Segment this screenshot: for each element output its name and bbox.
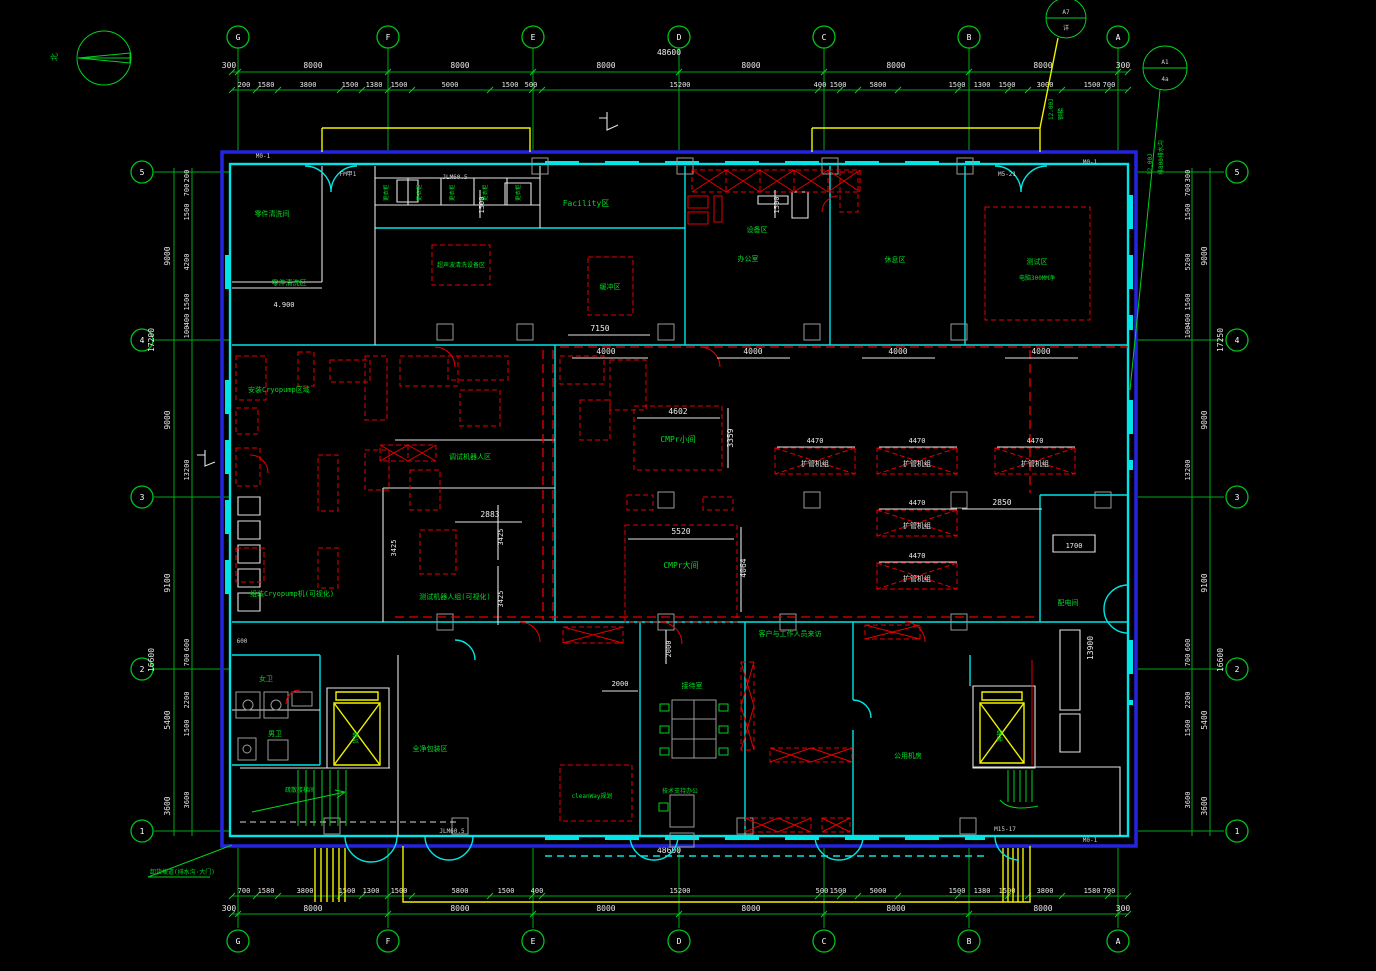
dim-text: 700 bbox=[238, 887, 251, 895]
dim-7150: 7150 bbox=[590, 324, 609, 333]
stairs-right bbox=[1000, 770, 1038, 808]
grid-bubble-col: G bbox=[236, 33, 241, 42]
dim-text: 8000 bbox=[450, 61, 469, 70]
dims-top-sub: 2001580380015001380150050001500500152004… bbox=[238, 81, 1116, 89]
grid-bubble-col: E bbox=[531, 33, 536, 42]
dim-4000: 4000 bbox=[596, 347, 615, 356]
dim-text: 1500 bbox=[339, 887, 356, 895]
dim-4470: 4470 bbox=[909, 499, 926, 507]
room-label-cmpr-large: CMPr大间 bbox=[663, 560, 698, 570]
dim-text: 300 bbox=[222, 904, 237, 913]
floorplan-drawing: 北 GFEDCBA GFEDCBA 54321 54321 48600 4860… bbox=[0, 0, 1376, 971]
dims-right-main: 90009000910054003600 bbox=[1200, 246, 1209, 815]
dim-text: 1500 bbox=[949, 81, 966, 89]
dim-4000: 4000 bbox=[743, 347, 762, 356]
locker-label: 更衣柜 bbox=[448, 184, 456, 201]
grid-bubbles-right: 54321 bbox=[1226, 161, 1248, 842]
grid-bubble-col: F bbox=[386, 33, 391, 42]
dim-1500: 1500 bbox=[478, 197, 486, 214]
room-label-freight-lift: 货梯 bbox=[352, 732, 360, 744]
dim-text: 15200 bbox=[669, 887, 690, 895]
grid-bubble-row: 3 bbox=[140, 493, 145, 502]
dim-text: 1500 bbox=[391, 81, 408, 89]
room-label-cleanway: cleanWay规划 bbox=[572, 792, 613, 800]
dim-1500: 1500 bbox=[773, 197, 781, 214]
room-label-test-room: 测试区 bbox=[1027, 257, 1048, 266]
dim-text: 5400 bbox=[1200, 710, 1209, 729]
dim-text: 9000 bbox=[1200, 410, 1209, 429]
dim-text: 1500 bbox=[183, 204, 191, 221]
dims-right-sub: 3007001500520015004001001320060070022001… bbox=[1184, 170, 1192, 809]
dim-text: 400 bbox=[814, 81, 827, 89]
callout-note: 12.00J bbox=[1048, 98, 1055, 120]
dim-text: 8000 bbox=[741, 61, 760, 70]
grid-bubble-col: D bbox=[677, 33, 682, 42]
grid-bubble-col: G bbox=[236, 937, 241, 946]
room-label-facility: Facility区 bbox=[563, 199, 610, 208]
dim-text: 400 bbox=[1184, 314, 1192, 327]
cad-floorplan-screenshot: 北 GFEDCBA GFEDCBA 54321 54321 48600 4860… bbox=[0, 0, 1376, 971]
grid-bubble-row: 4 bbox=[1235, 336, 1240, 345]
door-tag: M5-21 bbox=[998, 171, 1016, 178]
pipe-unit-label: 扩管机组 bbox=[903, 459, 931, 468]
dim-text: 1500 bbox=[1184, 294, 1192, 311]
grid-bubble-col: F bbox=[386, 937, 391, 946]
grid-bubble-col: A bbox=[1116, 937, 1121, 946]
door-tag: M0-1 bbox=[1083, 159, 1098, 166]
corridor-label-visitor: 客户与工作人员来访 bbox=[759, 629, 822, 638]
pipe-unit-label: 扩管机组 bbox=[903, 574, 931, 583]
dim-text: 8000 bbox=[450, 904, 469, 913]
room-label-cmpr-small: CMPr小间 bbox=[660, 435, 695, 444]
dim-text: 3000 bbox=[1037, 81, 1054, 89]
dim-text: 300 bbox=[222, 61, 237, 70]
dim-text: 17250 bbox=[1216, 328, 1225, 352]
dim-2000: 2000 bbox=[612, 680, 629, 688]
dim-text: 3600 bbox=[183, 792, 191, 809]
dim-text: 9000 bbox=[1200, 246, 1209, 265]
dim-4602: 4602 bbox=[668, 407, 687, 416]
dim-2883: 2883 bbox=[480, 510, 499, 519]
north-label: 北 bbox=[50, 53, 59, 61]
callout-sheet: 4a bbox=[1161, 76, 1169, 83]
door-tag: M0-1 bbox=[1083, 837, 1098, 844]
dims-left-main: 90009000910054003600 bbox=[163, 246, 172, 815]
dim-4470: 4470 bbox=[807, 437, 824, 445]
detail-callout-1: A7 详 12.00J 钢梯 bbox=[1046, 0, 1086, 120]
north-arrow-icon: 北 bbox=[50, 31, 131, 85]
locker-label: 更衣柜 bbox=[415, 184, 423, 201]
dim-text: 17200 bbox=[147, 328, 156, 352]
dim-3359: 3359 bbox=[726, 428, 735, 447]
pipe-unit-label: 扩管机组 bbox=[903, 521, 931, 530]
callout-ref: A7 bbox=[1062, 9, 1070, 16]
dim-text: 5000 bbox=[442, 81, 459, 89]
callout-ref: A1 bbox=[1161, 59, 1169, 66]
dim-text: 8000 bbox=[1033, 904, 1052, 913]
door-tag: JLM60.5 bbox=[442, 174, 468, 181]
dim-text: 3800 bbox=[1037, 887, 1054, 895]
door-tag: FM甲1 bbox=[340, 171, 357, 178]
door-tag: M15-17 bbox=[994, 826, 1016, 833]
dim-text: 400 bbox=[183, 314, 191, 327]
grid-bubble-col: C bbox=[822, 937, 827, 946]
grid-bubble-row: 5 bbox=[140, 168, 145, 177]
room-label-power-room: 配电间 bbox=[1058, 598, 1079, 607]
locker-labels: 更衣柜更衣柜更衣柜更衣柜更衣柜 bbox=[382, 184, 522, 201]
columns bbox=[324, 158, 1111, 834]
dim-text: 3800 bbox=[300, 81, 317, 89]
meeting-table bbox=[660, 700, 728, 758]
grid-bubble-row: 1 bbox=[140, 827, 145, 836]
grid-bubble-row: 3 bbox=[1235, 493, 1240, 502]
door-tag: JLM60.5 bbox=[439, 828, 465, 835]
room-label-cryo-assemble: 组装Cryopump机(可视化) bbox=[250, 589, 334, 598]
dim-text: 9000 bbox=[163, 410, 172, 429]
room-label-equip-area: 设备区 bbox=[747, 225, 768, 234]
room-label-utility: 公用机房 bbox=[894, 751, 922, 760]
dim-text: 3600 bbox=[1200, 796, 1209, 815]
dim-text: 1300 bbox=[363, 887, 380, 895]
dims-left-sub: 2007001500420015004001001320060070022001… bbox=[183, 170, 191, 809]
dim-text: 700 bbox=[1103, 887, 1116, 895]
dim-text: 1500 bbox=[1084, 81, 1101, 89]
dim-text: 1380 bbox=[366, 81, 383, 89]
callout-note: 钢梯 bbox=[1057, 108, 1065, 120]
dims-bottom-main: 300800080008000800080008000300 bbox=[222, 904, 1131, 913]
room-label-robot-test: 测试机器人组(可视化) bbox=[419, 592, 490, 601]
room-label-parts-wash-area: 零件清洗区 bbox=[272, 278, 307, 287]
room-label-buffer: 缓冲区 bbox=[600, 282, 621, 291]
dim-text: 15200 bbox=[669, 81, 690, 89]
dim-text: 8000 bbox=[596, 904, 615, 913]
level-mark: 4.900 bbox=[273, 301, 294, 309]
interior-walls-white bbox=[232, 166, 1120, 836]
dim-3425: 3425 bbox=[390, 540, 398, 557]
dim-text: 5800 bbox=[870, 81, 887, 89]
dim-4000: 4000 bbox=[888, 347, 907, 356]
unload-note-text: 卸货坡道(排水沟·大门) bbox=[150, 868, 215, 876]
dim-text: 200 bbox=[183, 170, 191, 183]
pipe-unit-labels: 扩管机组扩管机组扩管机组扩管机组扩管机组 bbox=[801, 459, 1049, 583]
dim-text: 8000 bbox=[1033, 61, 1052, 70]
dim-text: 5400 bbox=[163, 710, 172, 729]
room-label-packing: 全净包装区 bbox=[413, 744, 448, 753]
dim-text: 600 bbox=[183, 639, 191, 652]
room-label-stairs: 疏散楼梯间 bbox=[285, 786, 315, 794]
dim-text: 9100 bbox=[163, 573, 172, 592]
grid-bubbles-top: GFEDCBA bbox=[227, 26, 1129, 48]
dim-text: 8000 bbox=[741, 904, 760, 913]
pipe-unit-label: 扩管机组 bbox=[801, 459, 829, 468]
grid-bubbles-bottom: GFEDCBA bbox=[227, 930, 1129, 952]
dim-text: 5200 bbox=[1184, 254, 1192, 271]
dim-text: 13200 bbox=[1184, 459, 1192, 480]
dim-text: 8000 bbox=[596, 61, 615, 70]
grid-bubble-row: 4 bbox=[140, 336, 145, 345]
room-label-test-room-2: 电脑300MM净 bbox=[1019, 274, 1055, 282]
dim-text: 9000 bbox=[163, 246, 172, 265]
dim-text: 1500 bbox=[183, 294, 191, 311]
room-label-tech-support: 技术支持办公 bbox=[662, 787, 698, 795]
dim-text: 5000 bbox=[870, 887, 887, 895]
dim-text: 2200 bbox=[1184, 692, 1192, 709]
dim-2850: 2850 bbox=[992, 498, 1011, 507]
dim-text: 500 bbox=[525, 81, 538, 89]
grid-bubble-row: 2 bbox=[1235, 665, 1240, 674]
dim-text: 1500 bbox=[830, 81, 847, 89]
room-label-ultrasonic: 超声波清洗设备区 bbox=[437, 261, 485, 269]
dim-text: 1500 bbox=[502, 81, 519, 89]
dim-text: 1500 bbox=[342, 81, 359, 89]
dim-4470: 4470 bbox=[909, 552, 926, 560]
dim-3425: 3425 bbox=[497, 591, 505, 608]
room-label-passenger-lift: 客梯 bbox=[996, 730, 1004, 742]
room-label-robot-debug: 调试机器人区 bbox=[449, 452, 491, 461]
overall-dim-top: 48600 bbox=[657, 48, 681, 57]
dim-text: 500 bbox=[816, 887, 829, 895]
dim-text: 700 bbox=[1184, 184, 1192, 197]
room-label-reception: 接待室 bbox=[682, 681, 703, 690]
grid-bubble-row: 2 bbox=[140, 665, 145, 674]
dim-600: 600 bbox=[237, 638, 248, 645]
dim-text: 1500 bbox=[1184, 720, 1192, 737]
dim-text: 13200 bbox=[183, 459, 191, 480]
dim-text: 2200 bbox=[183, 692, 191, 709]
dim-text: 1300 bbox=[974, 81, 991, 89]
dim-text: 4200 bbox=[183, 254, 191, 271]
dims-bottom-sub: 7001580380015001300150058001500400152005… bbox=[238, 887, 1116, 895]
dim-text: 16600 bbox=[147, 648, 156, 672]
toilet-fixtures bbox=[236, 692, 312, 760]
grid-bubbles-left: 54321 bbox=[131, 161, 153, 842]
dim-text: 16600 bbox=[1216, 648, 1225, 672]
dim-4470: 4470 bbox=[1027, 437, 1044, 445]
dim-text: 100 bbox=[1184, 326, 1192, 339]
dim-text: 200 bbox=[238, 81, 251, 89]
dim-text: 8000 bbox=[303, 61, 322, 70]
dim-text: 9100 bbox=[1200, 573, 1209, 592]
dim-text: 1500 bbox=[1184, 204, 1192, 221]
room-label-office: 办公室 bbox=[738, 254, 759, 263]
door-tags: M0-1FM甲1JLM60.5M5-21M0-1JLM60.5M15-17M0-… bbox=[256, 153, 1098, 844]
grid-bubble-col: B bbox=[967, 937, 972, 946]
dim-text: 3600 bbox=[1184, 792, 1192, 809]
dim-4064: 4064 bbox=[739, 558, 748, 577]
grid-bubble-col: A bbox=[1116, 33, 1121, 42]
dim-text: 700 bbox=[183, 654, 191, 667]
dim-text: 1500 bbox=[183, 720, 191, 737]
room-label-wc-men: 男卫 bbox=[268, 730, 282, 738]
detail-callout-2: A1 4a 12.00J 排800排水沟 bbox=[1130, 46, 1187, 390]
room-label-wc-women: 女卫 bbox=[259, 674, 273, 683]
dim-text: 1580 bbox=[258, 887, 275, 895]
dim-4000: 4000 bbox=[1031, 347, 1050, 356]
callout-sheet: 详 bbox=[1063, 24, 1069, 32]
room-label-cryo-install: 安装Cryopump区域 bbox=[248, 385, 310, 394]
dim-text: 600 bbox=[1184, 639, 1192, 652]
dim-text: 1500 bbox=[498, 887, 515, 895]
locker-label: 更衣柜 bbox=[382, 184, 390, 201]
dim-1700: 1700 bbox=[1066, 542, 1083, 550]
room-labels: 零件清洗间 零件清洗区 超声波清洗设备区 Facility区 缓冲区 设备区 办… bbox=[248, 199, 1079, 800]
dim-text: 1500 bbox=[830, 887, 847, 895]
dim-text: 8000 bbox=[303, 904, 322, 913]
dim-text: 700 bbox=[1103, 81, 1116, 89]
dim-4470: 4470 bbox=[909, 437, 926, 445]
dims-left-total: 1720016600 bbox=[147, 328, 156, 672]
room-label-parts-wash-room: 零件清洗间 bbox=[255, 209, 290, 218]
dim-text: 700 bbox=[1184, 654, 1192, 667]
grid-bubble-col: C bbox=[822, 33, 827, 42]
dim-5520: 5520 bbox=[671, 527, 690, 536]
grid-bubble-col: E bbox=[531, 937, 536, 946]
dims-right-total: 1725016600 bbox=[1216, 328, 1225, 672]
dim-text: 700 bbox=[183, 184, 191, 197]
grid-bubble-col: D bbox=[677, 937, 682, 946]
dim-text: 3800 bbox=[297, 887, 314, 895]
dim-text: 8000 bbox=[886, 61, 905, 70]
dim-text: 300 bbox=[1116, 904, 1131, 913]
grid-bubble-row: 1 bbox=[1235, 827, 1240, 836]
room-label-rest: 休息区 bbox=[885, 255, 906, 264]
dims-top-main: 300800080008000800080008000300 bbox=[222, 61, 1131, 70]
dim-text: 400 bbox=[531, 887, 544, 895]
dim-text: 300 bbox=[1184, 170, 1192, 183]
dim-text: 1380 bbox=[974, 887, 991, 895]
dim-text: 1500 bbox=[391, 887, 408, 895]
dim-text: 8000 bbox=[886, 904, 905, 913]
dim-text: 1580 bbox=[258, 81, 275, 89]
pipe-unit-label: 扩管机组 bbox=[1021, 459, 1049, 468]
dim-13900: 13900 bbox=[1086, 636, 1095, 660]
dim-text: 300 bbox=[1116, 61, 1131, 70]
dim-text: 1500 bbox=[999, 81, 1016, 89]
dim-text: 1500 bbox=[949, 887, 966, 895]
dim-text: 100 bbox=[183, 326, 191, 339]
dim-text: 3600 bbox=[163, 796, 172, 815]
callout-note: 排800排水沟 bbox=[1157, 140, 1165, 175]
dim-3425: 3425 bbox=[497, 529, 505, 546]
grid-bubble-col: B bbox=[967, 33, 972, 42]
grid-bubble-row: 5 bbox=[1235, 168, 1240, 177]
dim-text: 5800 bbox=[452, 887, 469, 895]
locker-label: 更衣柜 bbox=[514, 184, 522, 201]
dim-text: 1580 bbox=[1084, 887, 1101, 895]
door-tag: M0-1 bbox=[256, 153, 271, 160]
unload-note: 卸货坡道(排水沟·大门) bbox=[148, 845, 232, 877]
